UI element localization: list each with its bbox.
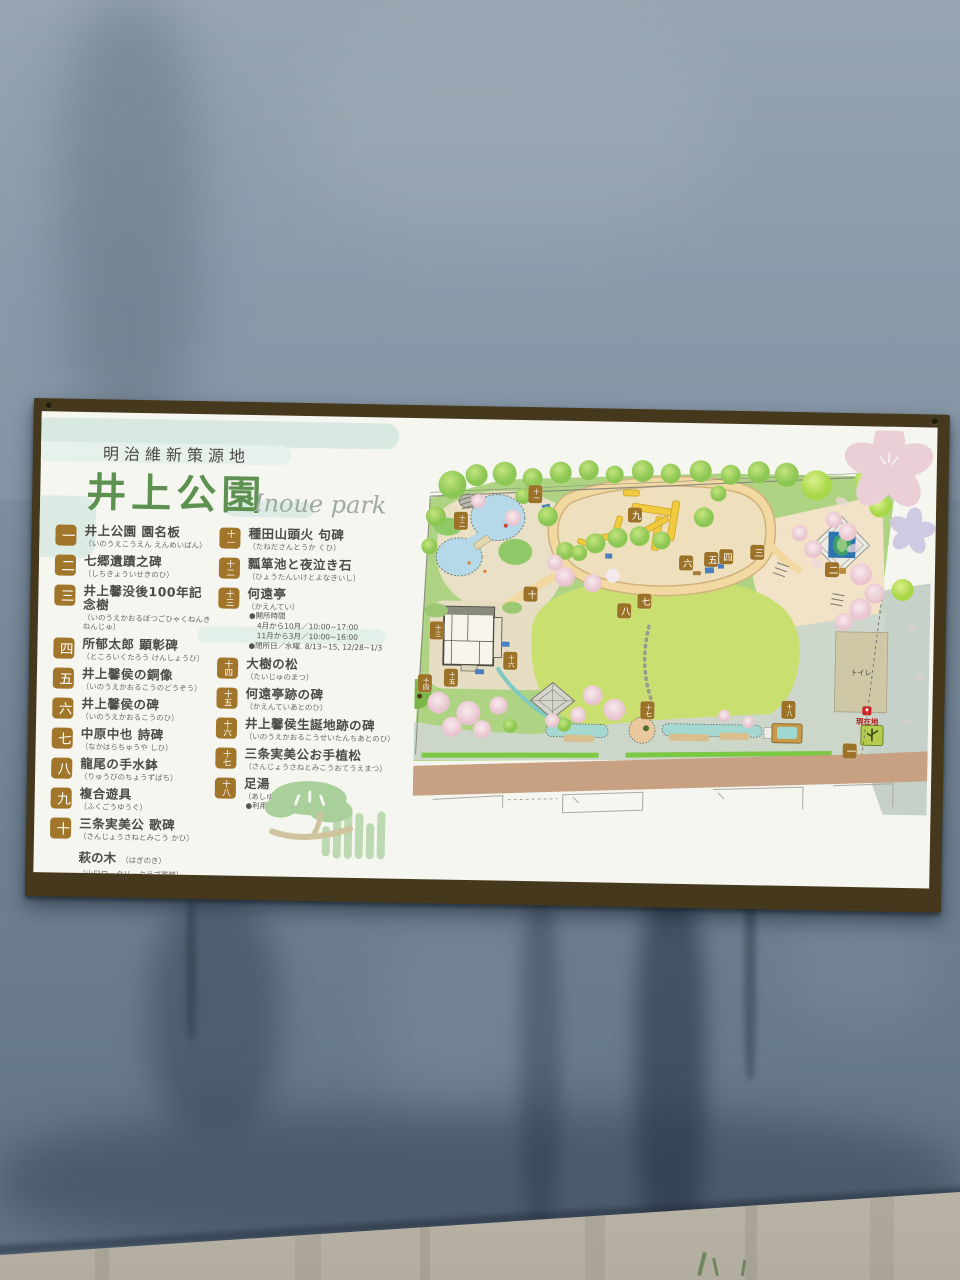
legend-extra-haginoki: 萩の木 （はぎのき） 〔山口ロータリークラブ寄贈〕 — [78, 847, 210, 881]
legend-item-name: 何遠亭 — [247, 587, 383, 603]
legend-item-kana: （いのうえかおるこうせいたんちあとのひ） — [245, 732, 395, 744]
legend-item: 十四 大樹の松 （たいじゅのまつ） — [217, 656, 413, 684]
legend-item: 十六 井上馨侯生誕地跡の碑 （いのうえかおるこうせいたんちあとのひ） — [216, 716, 412, 744]
wall-stain — [60, 0, 200, 430]
legend-extra-note: 〔山口ロータリークラブ寄贈〕 — [78, 868, 209, 881]
current-location-label: 現在地 — [856, 716, 879, 726]
legend-item-name: 三条実美公 歌碑 — [79, 817, 194, 833]
legend-number-badge: 十七 — [215, 747, 236, 768]
legend-item-kana: （かえんていあとのひ） — [245, 702, 327, 713]
legend-item-name: 井上馨侯の銅像 — [82, 667, 202, 683]
legend-item-name: 複合遊具 — [80, 787, 148, 802]
legend-number-badge: 八 — [51, 757, 72, 778]
legend-item-kana: （しちきょういせきのひ） — [84, 569, 174, 580]
legend-number-badge: 一 — [55, 524, 76, 545]
legend-item-name: 何遠亭跡の碑 — [245, 687, 327, 703]
legend-item-name: 七郷遺蹟之碑 — [84, 554, 174, 570]
pine-icon — [264, 780, 353, 838]
legend-item-notes: ●開所時間4月から10月／10:00~17:0011月から3月／10:00~16… — [246, 611, 382, 653]
legend-item: 七 中原中也 詩碑 （なかはらちゅうや しひ） — [52, 726, 212, 753]
legend-item-name: 瓢箪池と夜泣き石 — [248, 557, 361, 573]
legend-number-badge: 十三 — [218, 587, 239, 608]
legend-item-name: 井上馨侯の碑 — [81, 697, 179, 713]
wall-stain — [186, 900, 196, 1040]
bolt — [932, 418, 938, 424]
legend-item-kana: （ふくごうゆうぐ） — [79, 802, 147, 812]
legend-item: 九 複合遊具 （ふくごうゆうぐ） — [50, 786, 210, 813]
legend-item-kana: （いのうえこうえん えんめいばん） — [84, 539, 207, 550]
legend-item-name: 大樹の松 — [246, 657, 314, 672]
legend-item-name: 三条実美公お手植松 — [244, 747, 387, 764]
legend-item-kana: （なかはらちゅうや しひ） — [81, 742, 173, 753]
legend-item: 五 井上馨侯の銅像 （いのうえかおるこうのどうぞう） — [53, 666, 213, 693]
legend-item-name: 所郁太郎 顕彰碑 — [82, 637, 204, 653]
legend-item-kana: （いのうえかおるこうのどうぞう） — [82, 682, 202, 693]
sign-face: 明治維新策源地 井上公園 Inoue park 一 井上公園 園名板 （いのうえ… — [33, 411, 937, 888]
legend-item-kana: （いのうえかおるこうのひ） — [81, 712, 179, 723]
legend-number-badge: 三 — [54, 584, 75, 605]
legend-item-kana: （たいじゅのまつ） — [246, 672, 314, 682]
legend-number-badge: 十一 — [219, 527, 240, 548]
legend-number-badge: 十二 — [219, 557, 240, 578]
kaentei-building — [443, 607, 502, 672]
legend-list-right: 十一 種田山頭火 句碑 （たねださんとうか くひ） 十二 瓢箪池と夜泣き石 （ひ… — [214, 526, 415, 814]
legend-number-badge: 四 — [53, 637, 74, 658]
lawn — [530, 580, 801, 731]
legend-item: 十 三条実美公 歌碑 （さんじょうさねとみこう かひ） — [50, 816, 210, 843]
park-information-sign: 明治維新策源地 井上公園 Inoue park 一 井上公園 園名板 （いのうえ… — [25, 398, 950, 913]
legend-item: 二 七郷遺蹟之碑 （しちきょういせきのひ） — [55, 553, 215, 580]
legend-item-name: 龍尾の手水鉢 — [80, 757, 178, 773]
legend-item-kana: （さんじょうさねとみこうおてうえまつ） — [244, 762, 387, 774]
wall-stain — [300, 30, 720, 250]
legend-item-name: 井上馨没後100年記念樹 — [83, 584, 214, 614]
legend-number-badge: 五 — [53, 667, 74, 688]
legend-item-kana: （さんじょうさねとみこう かひ） — [79, 832, 194, 843]
legend-number-badge: 六 — [52, 697, 73, 718]
legend-item-name: 中原中也 詩碑 — [81, 727, 173, 743]
wall-stain — [790, 900, 930, 1030]
legend-item: 十二 瓢箪池と夜泣き石 （ひょうたんいけとよなきいし） — [219, 556, 415, 584]
legend-item-kana: （いのうえかおるぼつごひゃくねんきねんじゅ） — [83, 613, 214, 633]
legend-column-left: 一 井上公園 園名板 （いのうえこうえん えんめいばん） 二 七郷遺蹟之碑 （し… — [49, 523, 215, 881]
park-title: 井上公園 — [86, 460, 267, 521]
wall-stain — [150, 900, 280, 1130]
legend-item: 四 所郁太郎 顕彰碑 （ところいくたろう けんしょうひ） — [53, 636, 213, 663]
legend-number-badge: 九 — [50, 787, 71, 808]
bolt — [46, 402, 52, 408]
legend-item-kana: （ひょうたんいけとよなきいし） — [248, 572, 361, 583]
legend-item: 十五 何遠亭跡の碑 （かえんていあとのひ） — [216, 686, 412, 714]
legend-number-badge: 十八 — [215, 777, 236, 798]
park-title-english: Inoue park — [254, 489, 387, 519]
legend-number-badge: 七 — [52, 727, 73, 748]
park-map-illustration: トイレ 現在地 — [412, 454, 933, 825]
legend-item-kana: （りゅうびのちょうずばち） — [80, 772, 178, 783]
legend-item-name: 井上馨侯生誕地跡の碑 — [245, 717, 395, 734]
legend-item: 六 井上馨侯の碑 （いのうえかおるこうのひ） — [52, 696, 212, 723]
legend-item-kana: （たねださんとうか くひ） — [248, 542, 344, 553]
legend-item: 十三 何遠亭 （かえんてい） ●開所時間4月から10月／10:00~17:001… — [217, 586, 414, 654]
legend-item: 一 井上公園 園名板 （いのうえこうえん えんめいばん） — [55, 523, 215, 550]
legend-extra-kana: （はぎのき） — [121, 856, 166, 866]
legend-number-badge: 十六 — [216, 717, 237, 738]
legend-item-kana: （ところいくたろう けんしょうひ） — [82, 652, 204, 663]
legend-item: 十七 三条実美公お手植松 （さんじょうさねとみこうおてうえまつ） — [215, 746, 411, 774]
legend-item: 八 龍尾の手水鉢 （りゅうびのちょうずばち） — [51, 756, 211, 783]
toilet-label: トイレ — [851, 669, 872, 677]
legend-item-name: 種田山頭火 句碑 — [248, 527, 344, 543]
legend-number-badge: 十四 — [217, 657, 238, 678]
legend-number-badge: 十 — [50, 817, 71, 838]
legend-item-name: 井上公園 園名板 — [84, 524, 207, 540]
legend-number-badge: 十五 — [216, 687, 237, 708]
pine-tree-decoration — [264, 775, 394, 863]
legend-list-left: 一 井上公園 園名板 （いのうえこうえん えんめいばん） 二 七郷遺蹟之碑 （し… — [50, 523, 216, 843]
legend-item: 三 井上馨没後100年記念樹 （いのうえかおるぼつごひゃくねんきねんじゅ） — [54, 583, 215, 633]
legend-item: 十一 種田山頭火 句碑 （たねださんとうか くひ） — [219, 526, 415, 554]
wall-stain — [744, 880, 756, 1080]
wall-stain — [380, 930, 540, 1130]
legend-number-badge: 二 — [55, 554, 76, 575]
legend-extra-name: 萩の木 — [78, 850, 116, 866]
